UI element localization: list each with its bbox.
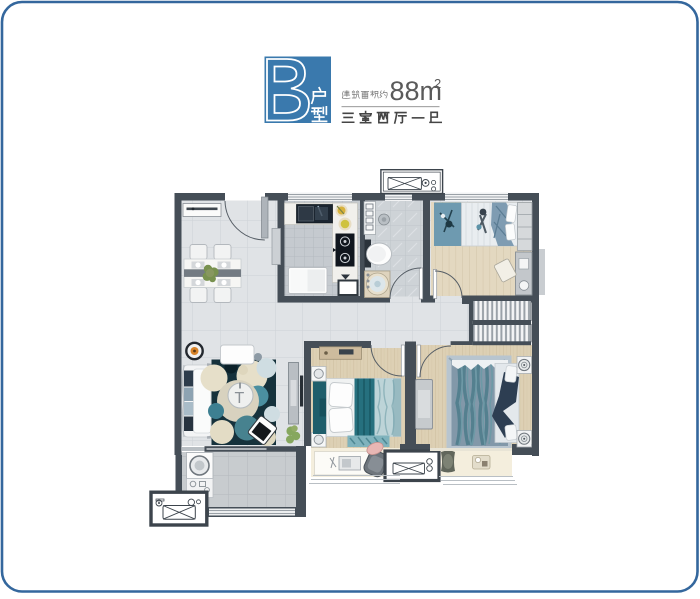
svg-text:T: T (235, 390, 245, 407)
svg-text:2: 2 (434, 76, 441, 91)
